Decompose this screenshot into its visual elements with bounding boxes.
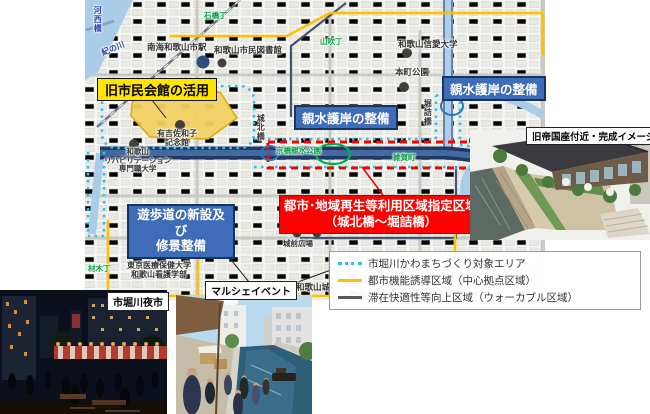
legend-label: 市堀川かわまちづくり対象エリア — [368, 256, 526, 271]
map-label-shinai-univ: 和歌山信愛大学 — [398, 40, 458, 50]
map-label-kawanishi-bridge: 河西橋 — [93, 6, 102, 33]
caption-marche-event: マルシェイベント — [205, 281, 297, 300]
rehab-line3: 専門職大学 — [119, 164, 157, 173]
legend-label: 滞在快適性等向上区域（ウォーカブル区域） — [368, 290, 578, 305]
map-label-johoku-bridge: 城北橋 — [256, 114, 265, 141]
callout-waterfront-left: 親水護岸の整備 — [294, 105, 398, 130]
legend-item-urban-function: 都市機能誘導区域（中心拠点区域） — [338, 273, 632, 288]
map-label-city-library: 和歌山市民図書館 — [214, 46, 282, 56]
tokyo-med-line1: 東京医療保健大学 — [127, 261, 191, 270]
map-label-horizume-bridge: 堀詰橋 — [423, 99, 432, 126]
callout-promenade: 遊歩道の新設及び 修景整備 — [127, 204, 235, 259]
map-label-ariyoshi-memorial: 有吉佐和子 記念館 — [157, 129, 197, 147]
ariyoshi-line2: 記念館 — [165, 138, 189, 147]
tokyo-med-line2: 和歌山看護学部 — [131, 270, 187, 279]
legend-label: 都市機能誘導区域（中心拠点区域） — [368, 273, 536, 288]
render-photo — [470, 130, 650, 240]
map-label-rehab-univ: 和歌山 リハビリテーション 専門職大学 — [104, 148, 171, 174]
slide-canvas: 河西橋 紀の川 石橋丁 南海和歌山市駅 和歌山市民図書館 山吹丁 和歌山信愛大学… — [0, 0, 650, 414]
callout-designated-zone: 都市･地域再生等利用区域指定区域 （城北橋～堀詰橋） — [279, 195, 483, 234]
ariyoshi-line1: 有吉佐和子 — [157, 129, 197, 138]
map-label-jomae-plaza: 城前広場 — [283, 240, 313, 249]
map-label-kyobashi-park: 京橋親水公園 — [276, 147, 321, 156]
map-label-tokyo-med-univ: 東京医療保健大学 和歌山看護学部 — [127, 261, 191, 279]
map-label-saika-cho: 雑賀町 — [393, 154, 416, 163]
map-label-zaimoku-cho: 材木丁 — [88, 265, 111, 274]
promenade-line2: 修景整備 — [156, 239, 206, 253]
caption-render-photo: 旧帝国座付近・完成イメージ — [526, 127, 650, 145]
legend-marker-solid-gray — [338, 296, 362, 299]
map-label-honmachi-park: 本町公園 — [395, 68, 429, 78]
caption-night-market: 市堀川夜市 — [107, 292, 169, 311]
promenade-line1: 遊歩道の新設及び — [137, 208, 225, 238]
map-label-yamabuki-cho: 山吹丁 — [320, 38, 343, 47]
callout-old-civic-hall: 旧市民会館の活用 — [97, 78, 217, 101]
map-label-castle: 和歌山城 — [296, 283, 330, 293]
map-legend: 市堀川かわまちづくり対象エリア 都市機能誘導区域（中心拠点区域） 滞在快適性等向… — [329, 251, 641, 310]
map-label-ishibashi-cho: 石橋丁 — [204, 12, 227, 21]
zone-line2: （城北橋～堀詰橋） — [325, 215, 438, 229]
marche-photo — [176, 295, 312, 414]
legend-marker-dotted-cyan — [338, 262, 362, 265]
zone-line1: 都市･地域再生等利用区域指定区域 — [284, 199, 478, 213]
legend-item-kawamachi: 市堀川かわまちづくり対象エリア — [338, 256, 632, 271]
callout-waterfront-right: 親水護岸の整備 — [442, 76, 546, 101]
legend-marker-solid-yellow — [338, 279, 362, 282]
map-label-nankai-station: 南海和歌山市駅 — [147, 43, 207, 53]
legend-item-walkable: 滞在快適性等向上区域（ウォーカブル区域） — [338, 290, 632, 305]
